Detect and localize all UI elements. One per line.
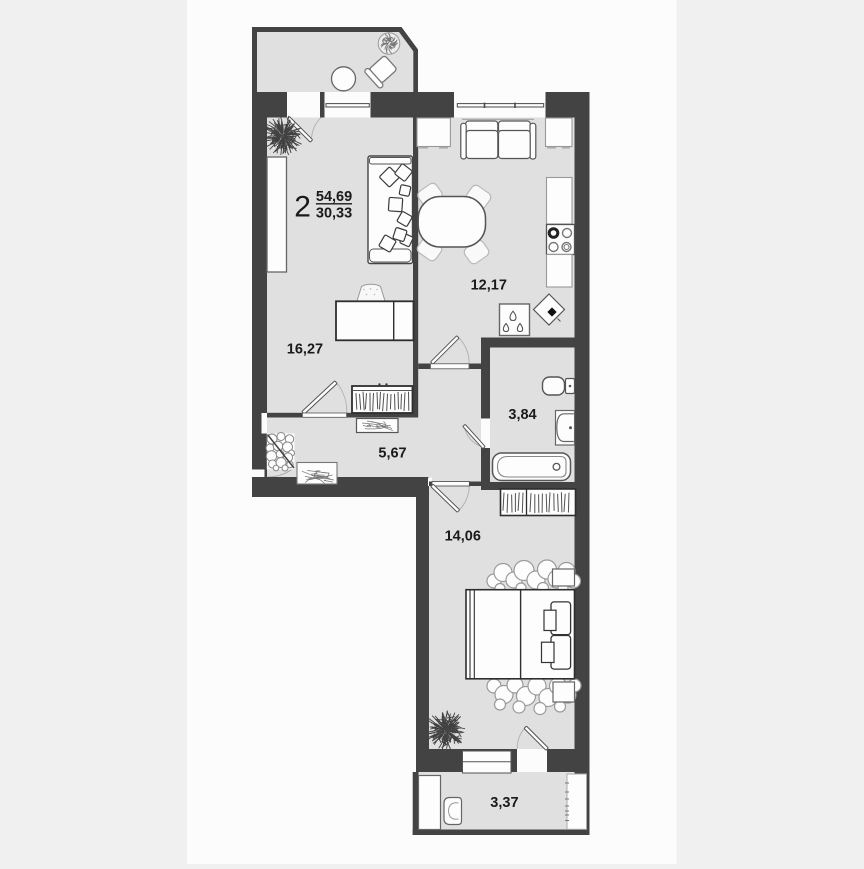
svg-text:2: 2 [294,191,311,224]
svg-text:12,17: 12,17 [471,277,507,293]
svg-text:54,69: 54,69 [316,189,352,205]
svg-text:30,33: 30,33 [316,206,352,222]
svg-text:14,06: 14,06 [445,529,481,545]
svg-text:3,84: 3,84 [508,407,536,423]
svg-text:16,27: 16,27 [287,342,323,358]
svg-text:3,37: 3,37 [490,795,518,811]
svg-text:5,67: 5,67 [378,445,406,461]
